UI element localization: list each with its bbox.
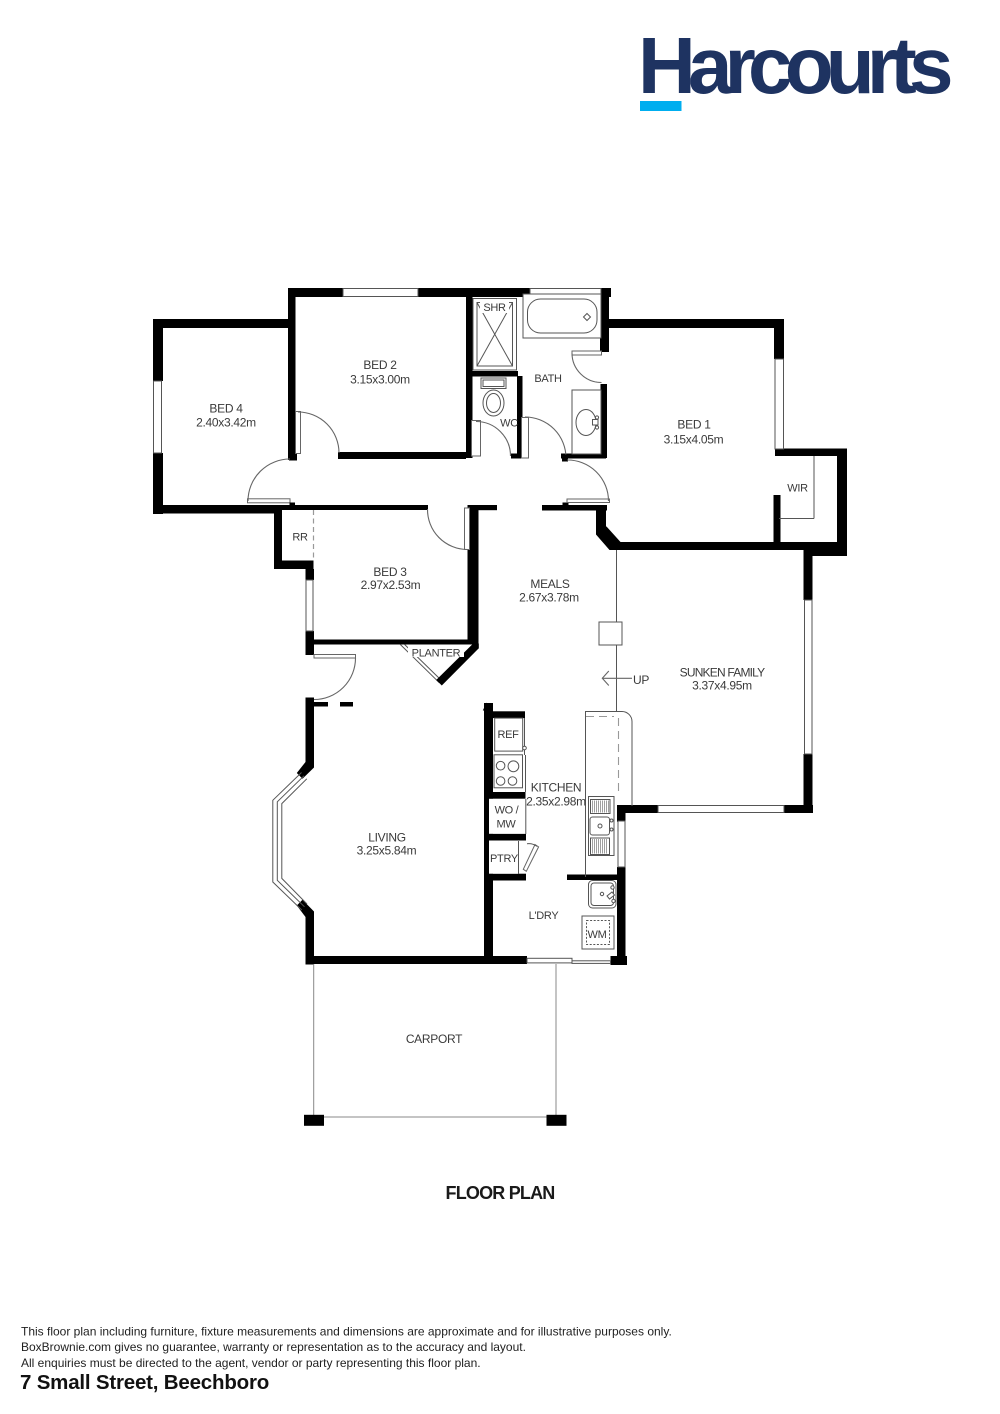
svg-text:2.67x3.78m: 2.67x3.78m <box>519 591 579 605</box>
svg-text:MW: MW <box>497 819 517 831</box>
svg-text:SHR: SHR <box>483 302 506 314</box>
svg-text:WM: WM <box>588 929 607 941</box>
svg-text:3.15x4.05m: 3.15x4.05m <box>664 433 724 447</box>
svg-text:UP: UP <box>633 673 649 687</box>
svg-text:BED 1: BED 1 <box>677 418 711 432</box>
svg-text:Harcourts: Harcourts <box>638 21 951 110</box>
svg-text:BED 2: BED 2 <box>363 358 397 372</box>
svg-text:BED 4: BED 4 <box>209 402 243 416</box>
svg-text:This floor plan including furn: This floor plan including furniture, fix… <box>21 1325 672 1339</box>
svg-text:7 Small Street, Beechboro: 7 Small Street, Beechboro <box>20 1371 269 1394</box>
svg-text:All enquiries must be directed: All enquiries must be directed to the ag… <box>21 1356 481 1370</box>
svg-text:MEALS: MEALS <box>530 577 569 591</box>
svg-text:FLOOR PLAN: FLOOR PLAN <box>446 1183 555 1203</box>
svg-text:SUNKEN FAMILY: SUNKEN FAMILY <box>680 666 766 680</box>
svg-text:2.40x3.42m: 2.40x3.42m <box>196 416 256 430</box>
svg-text:3.37x4.95m: 3.37x4.95m <box>692 679 752 693</box>
svg-text:L'DRY: L'DRY <box>529 910 560 922</box>
svg-text:WC: WC <box>500 418 518 430</box>
svg-text:3.25x5.84m: 3.25x5.84m <box>357 844 417 858</box>
svg-text:BoxBrownie.com gives no guaran: BoxBrownie.com gives no guarantee, warra… <box>21 1340 526 1354</box>
svg-text:KITCHEN: KITCHEN <box>531 781 582 795</box>
svg-text:CARPORT: CARPORT <box>406 1032 463 1046</box>
svg-text:WO /: WO / <box>495 805 520 817</box>
svg-text:BATH: BATH <box>534 373 562 385</box>
svg-text:2.35x2.98m: 2.35x2.98m <box>526 795 586 809</box>
svg-text:2.97x2.53m: 2.97x2.53m <box>361 578 421 592</box>
svg-text:REF: REF <box>497 729 519 741</box>
svg-text:LIVING: LIVING <box>368 831 406 845</box>
svg-text:PTRY: PTRY <box>490 853 519 865</box>
svg-text:BED 3: BED 3 <box>373 565 407 579</box>
svg-text:RR: RR <box>292 532 308 544</box>
svg-text:3.15x3.00m: 3.15x3.00m <box>350 373 410 387</box>
svg-text:WIR: WIR <box>787 483 808 495</box>
svg-text:PLANTER: PLANTER <box>412 648 461 660</box>
